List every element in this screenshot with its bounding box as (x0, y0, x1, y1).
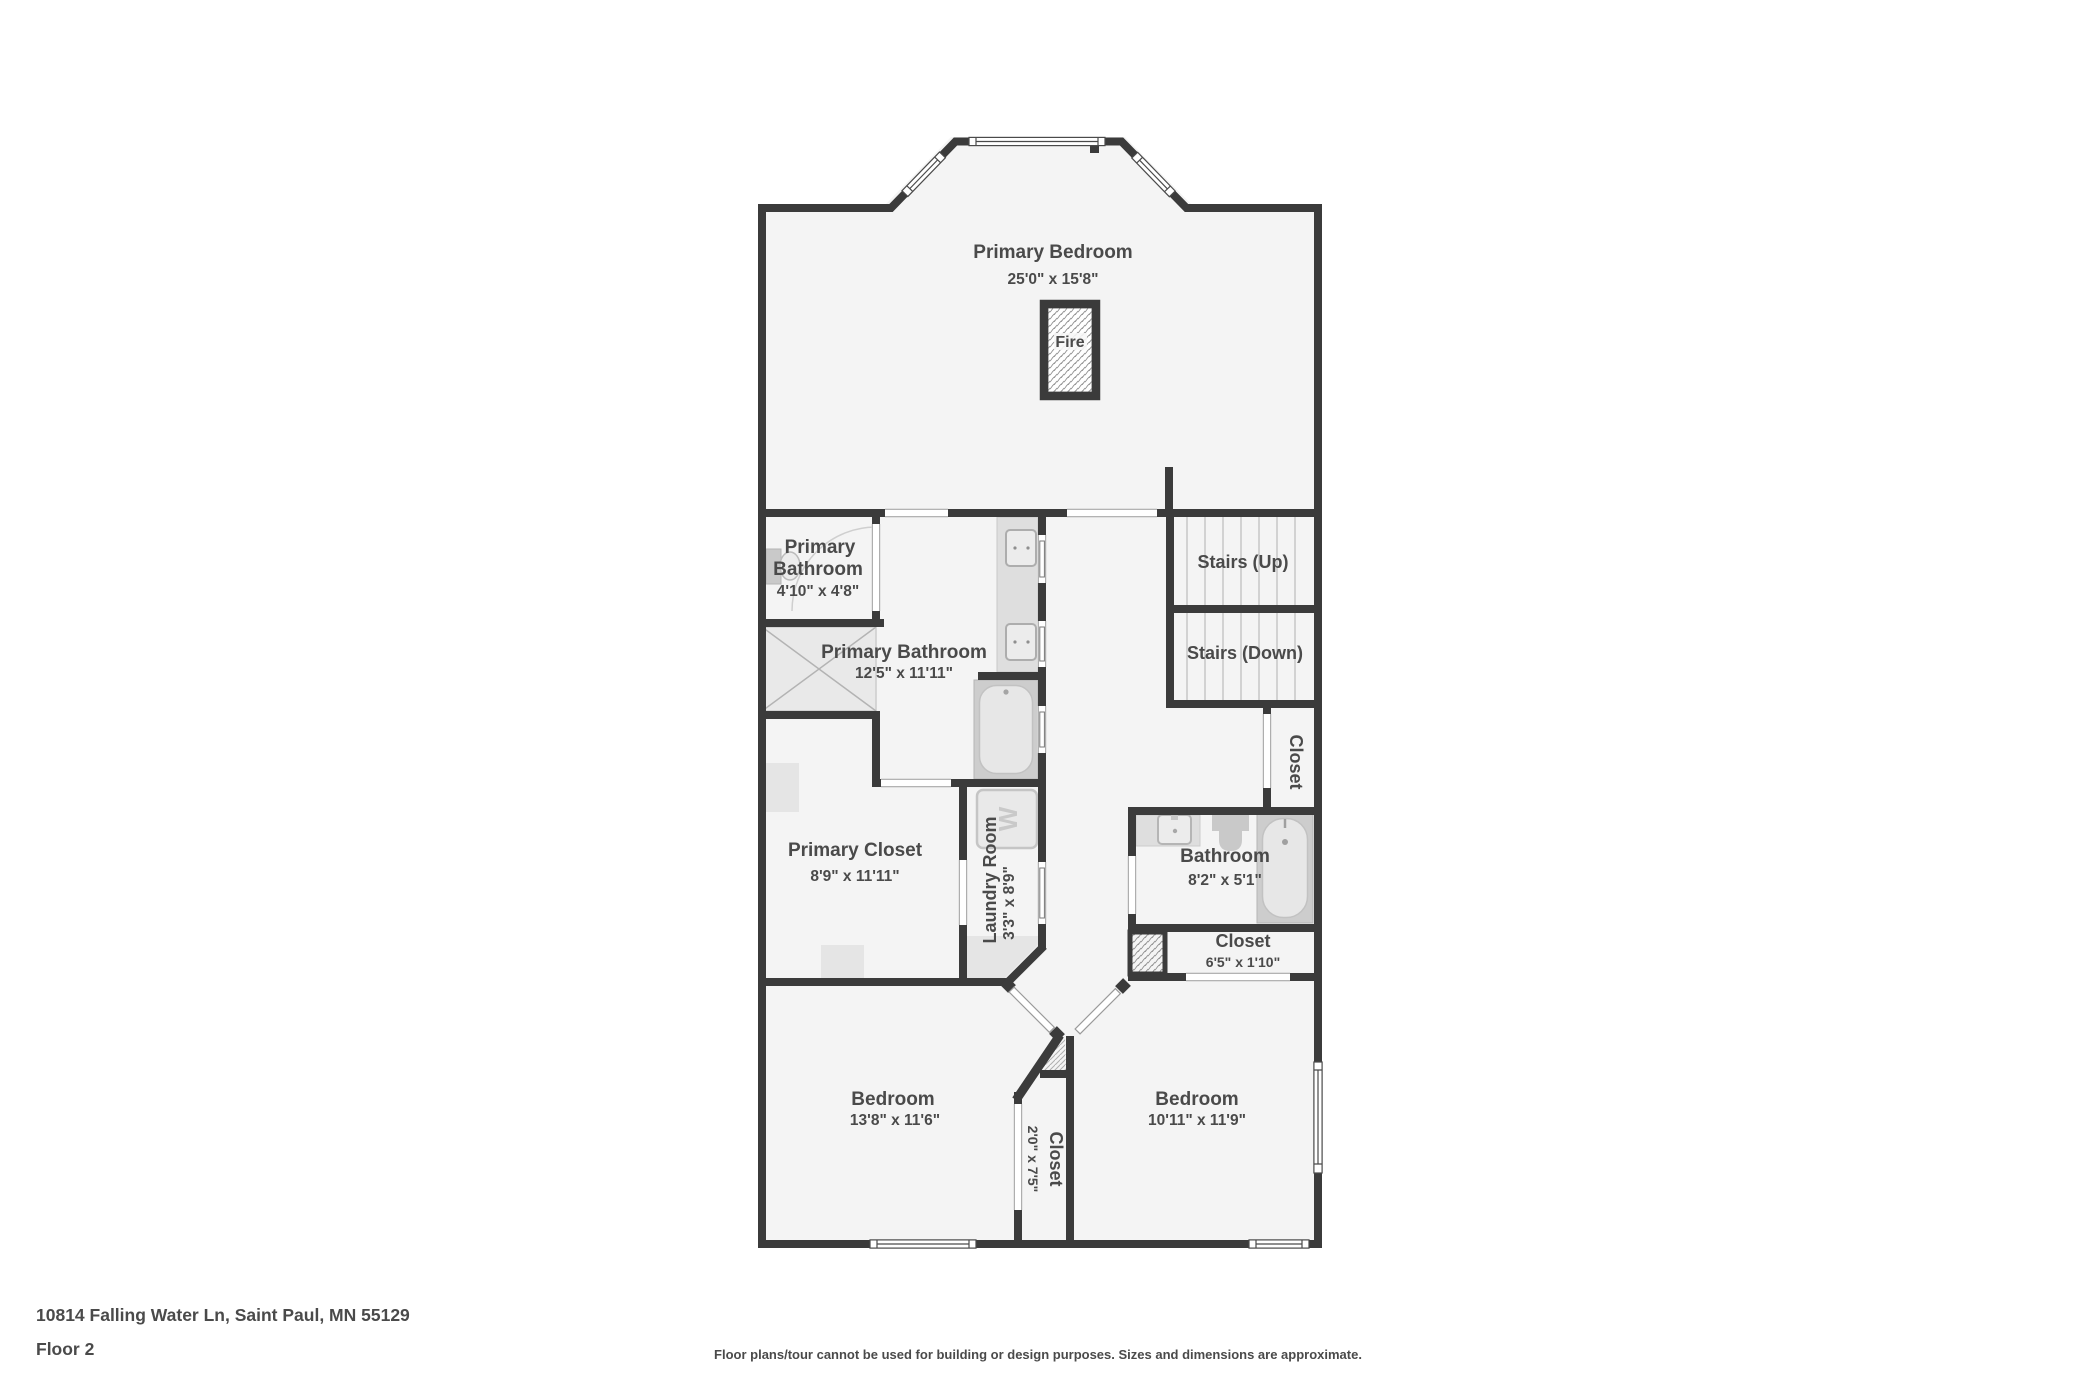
svg-text:4'10" x 4'8": 4'10" x 4'8" (777, 583, 859, 600)
svg-text:25'0" x 15'8": 25'0" x 15'8" (1007, 271, 1098, 288)
svg-text:Closet: Closet (1046, 1131, 1066, 1186)
svg-text:6'5" x 1'10": 6'5" x 1'10" (1206, 954, 1280, 970)
svg-text:13'8" x 11'6": 13'8" x 11'6" (850, 1112, 940, 1129)
svg-text:Stairs (Down): Stairs (Down) (1187, 643, 1303, 663)
svg-text:8'9" x 11'11": 8'9" x 11'11" (810, 868, 899, 885)
svg-text:Bathroom: Bathroom (1180, 846, 1270, 867)
svg-text:Bathroom: Bathroom (773, 559, 863, 580)
svg-text:Closet: Closet (1215, 931, 1270, 951)
svg-text:2'0" x 7'5": 2'0" x 7'5" (1025, 1126, 1041, 1193)
svg-text:Primary Bathroom: Primary Bathroom (821, 642, 987, 663)
svg-text:Floor 2: Floor 2 (36, 1339, 95, 1359)
svg-text:10814 Falling Water Ln, Saint: 10814 Falling Water Ln, Saint Paul, MN 5… (36, 1305, 410, 1325)
svg-text:Primary: Primary (785, 537, 856, 558)
svg-text:Laundry Room: Laundry Room (980, 816, 1000, 943)
svg-text:3'3" x 8'9": 3'3" x 8'9" (1001, 866, 1018, 940)
svg-text:Closet: Closet (1286, 734, 1306, 789)
svg-text:Primary Bedroom: Primary Bedroom (973, 242, 1132, 263)
svg-text:Stairs (Up): Stairs (Up) (1197, 552, 1288, 572)
svg-text:Bedroom: Bedroom (851, 1089, 934, 1110)
svg-text:Primary Closet: Primary Closet (788, 840, 923, 861)
svg-text:Bedroom: Bedroom (1155, 1089, 1238, 1110)
svg-text:10'11" x 11'9": 10'11" x 11'9" (1148, 1112, 1246, 1129)
svg-text:8'2" x 5'1": 8'2" x 5'1" (1188, 872, 1262, 889)
svg-text:Floor plans/tour cannot be use: Floor plans/tour cannot be used for buil… (714, 1347, 1362, 1362)
svg-text:Fire: Fire (1055, 334, 1084, 351)
svg-text:12'5" x 11'11": 12'5" x 11'11" (855, 665, 953, 682)
